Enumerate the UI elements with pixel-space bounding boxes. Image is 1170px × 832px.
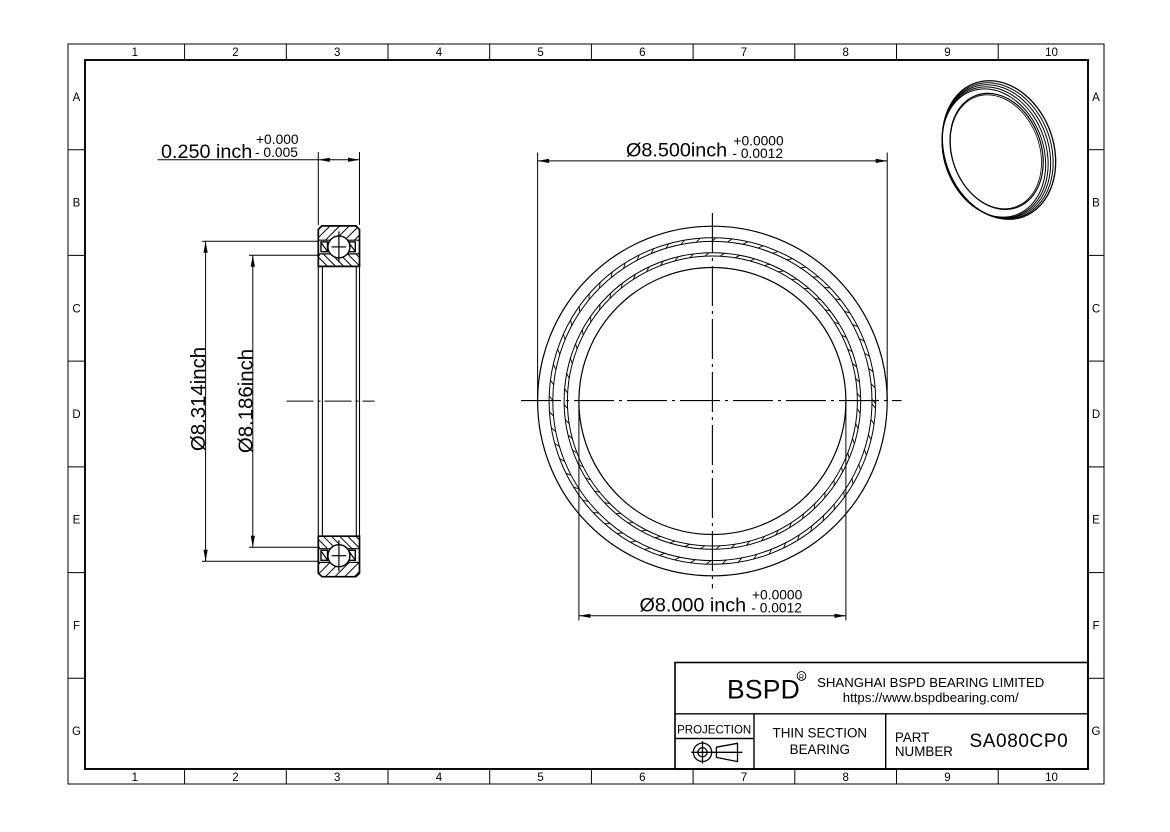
svg-text:7: 7 [741, 772, 747, 784]
svg-text:6: 6 [639, 772, 645, 784]
svg-text:A: A [1092, 92, 1100, 104]
svg-text:Ø8.000 inch: Ø8.000 inch [640, 595, 747, 617]
svg-text:R: R [799, 672, 804, 681]
svg-text:F: F [1092, 620, 1099, 632]
svg-text:NUMBER: NUMBER [895, 744, 953, 759]
svg-text:Ø8.314inch: Ø8.314inch [188, 347, 210, 451]
svg-text:https://www.bspdbearing.com/: https://www.bspdbearing.com/ [843, 690, 1019, 705]
svg-text:9: 9 [944, 47, 950, 59]
svg-text:SA080CP0: SA080CP0 [970, 731, 1069, 752]
svg-text:10: 10 [1045, 772, 1058, 784]
svg-text:5: 5 [537, 772, 543, 784]
svg-text:E: E [1092, 515, 1100, 527]
svg-text:1: 1 [132, 772, 138, 784]
svg-text:D: D [1092, 409, 1100, 421]
svg-text:2: 2 [232, 772, 238, 784]
svg-text:B: B [73, 198, 81, 210]
svg-text:9: 9 [944, 772, 950, 784]
svg-text:4: 4 [436, 47, 443, 59]
svg-text:C: C [72, 303, 80, 315]
svg-text:SHANGHAI BSPD BEARING LIMITED: SHANGHAI BSPD BEARING LIMITED [817, 675, 1044, 690]
svg-text:8: 8 [842, 772, 848, 784]
svg-text:BEARING: BEARING [790, 742, 850, 757]
svg-text:E: E [73, 515, 81, 527]
svg-text:G: G [72, 726, 81, 738]
svg-text:2: 2 [232, 47, 238, 59]
svg-text:5: 5 [537, 47, 543, 59]
svg-text:3: 3 [334, 772, 340, 784]
svg-text:C: C [1092, 303, 1100, 315]
svg-text:- 0.005: - 0.005 [255, 145, 298, 160]
svg-text:BSPD: BSPD [727, 674, 800, 704]
svg-text:- 0.0012: - 0.0012 [732, 146, 783, 161]
svg-text:4: 4 [436, 772, 443, 784]
svg-text:B: B [1092, 198, 1100, 210]
svg-text:8: 8 [842, 47, 848, 59]
svg-text:THIN SECTION: THIN SECTION [773, 725, 867, 740]
svg-text:3: 3 [334, 47, 340, 59]
svg-text:10: 10 [1045, 47, 1058, 59]
svg-text:6: 6 [639, 47, 645, 59]
svg-text:D: D [72, 409, 80, 421]
svg-text:G: G [1092, 726, 1101, 738]
svg-text:F: F [73, 620, 80, 632]
svg-text:7: 7 [741, 47, 747, 59]
svg-text:Ø8.186inch: Ø8.186inch [236, 349, 258, 453]
svg-text:A: A [73, 92, 81, 104]
svg-text:1: 1 [132, 47, 138, 59]
svg-text:PROJECTION: PROJECTION [677, 724, 751, 736]
svg-text:- 0.0012: - 0.0012 [751, 601, 802, 616]
svg-text:Ø8.500inch: Ø8.500inch [626, 140, 727, 162]
